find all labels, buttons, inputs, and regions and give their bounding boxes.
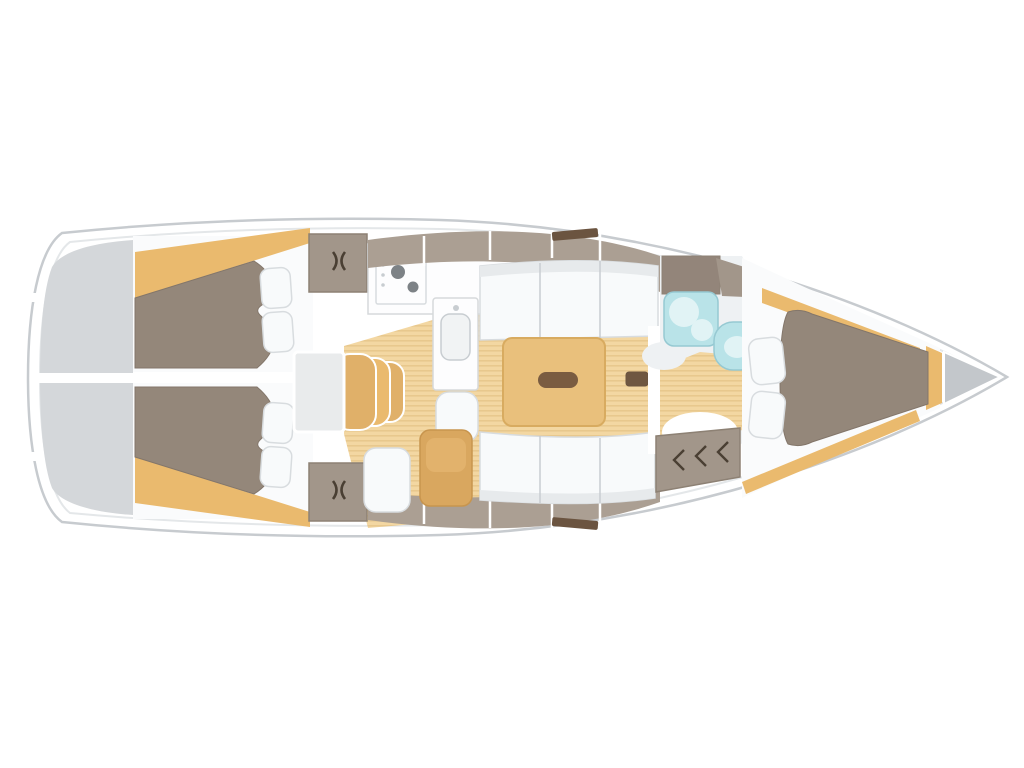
nav-chair-seat bbox=[426, 438, 466, 472]
stove-knob bbox=[381, 273, 385, 277]
transom-centerline bbox=[30, 373, 138, 383]
head-top-locker bbox=[662, 256, 720, 294]
stove-knob bbox=[381, 283, 385, 287]
v-berth-cabin bbox=[742, 258, 942, 498]
transom-step-notch bbox=[22, 293, 36, 302]
transom-step-notch bbox=[22, 452, 36, 461]
wardrobe-starboard bbox=[309, 234, 367, 292]
wardrobe-port bbox=[309, 463, 367, 521]
faucet bbox=[453, 305, 459, 311]
washbasin-bowl bbox=[691, 319, 713, 341]
settee-port bbox=[480, 432, 655, 504]
berth-pillow bbox=[748, 390, 787, 439]
floor-plan-canvas bbox=[0, 0, 1024, 768]
table-handle bbox=[538, 372, 578, 388]
companionway-landing bbox=[294, 352, 344, 432]
mast-step bbox=[626, 372, 648, 386]
companionway bbox=[294, 352, 404, 432]
aft-cabin-starboard bbox=[133, 228, 313, 372]
side-seat-cushion bbox=[364, 448, 410, 512]
berth-pillow bbox=[262, 311, 295, 353]
berth-pillow bbox=[262, 402, 295, 444]
berth-pillow bbox=[260, 267, 293, 309]
sink-basin bbox=[441, 314, 470, 360]
berth-pillow bbox=[748, 336, 787, 385]
stove-burner bbox=[408, 282, 419, 293]
aft-cabin-port bbox=[133, 383, 313, 527]
wardrobe-box bbox=[309, 463, 367, 521]
boat-floor-plan bbox=[0, 0, 1024, 768]
berth-pillow bbox=[260, 446, 293, 488]
stove-burner bbox=[391, 265, 405, 279]
wardrobe-box bbox=[309, 234, 367, 292]
settee-starboard bbox=[480, 261, 658, 340]
